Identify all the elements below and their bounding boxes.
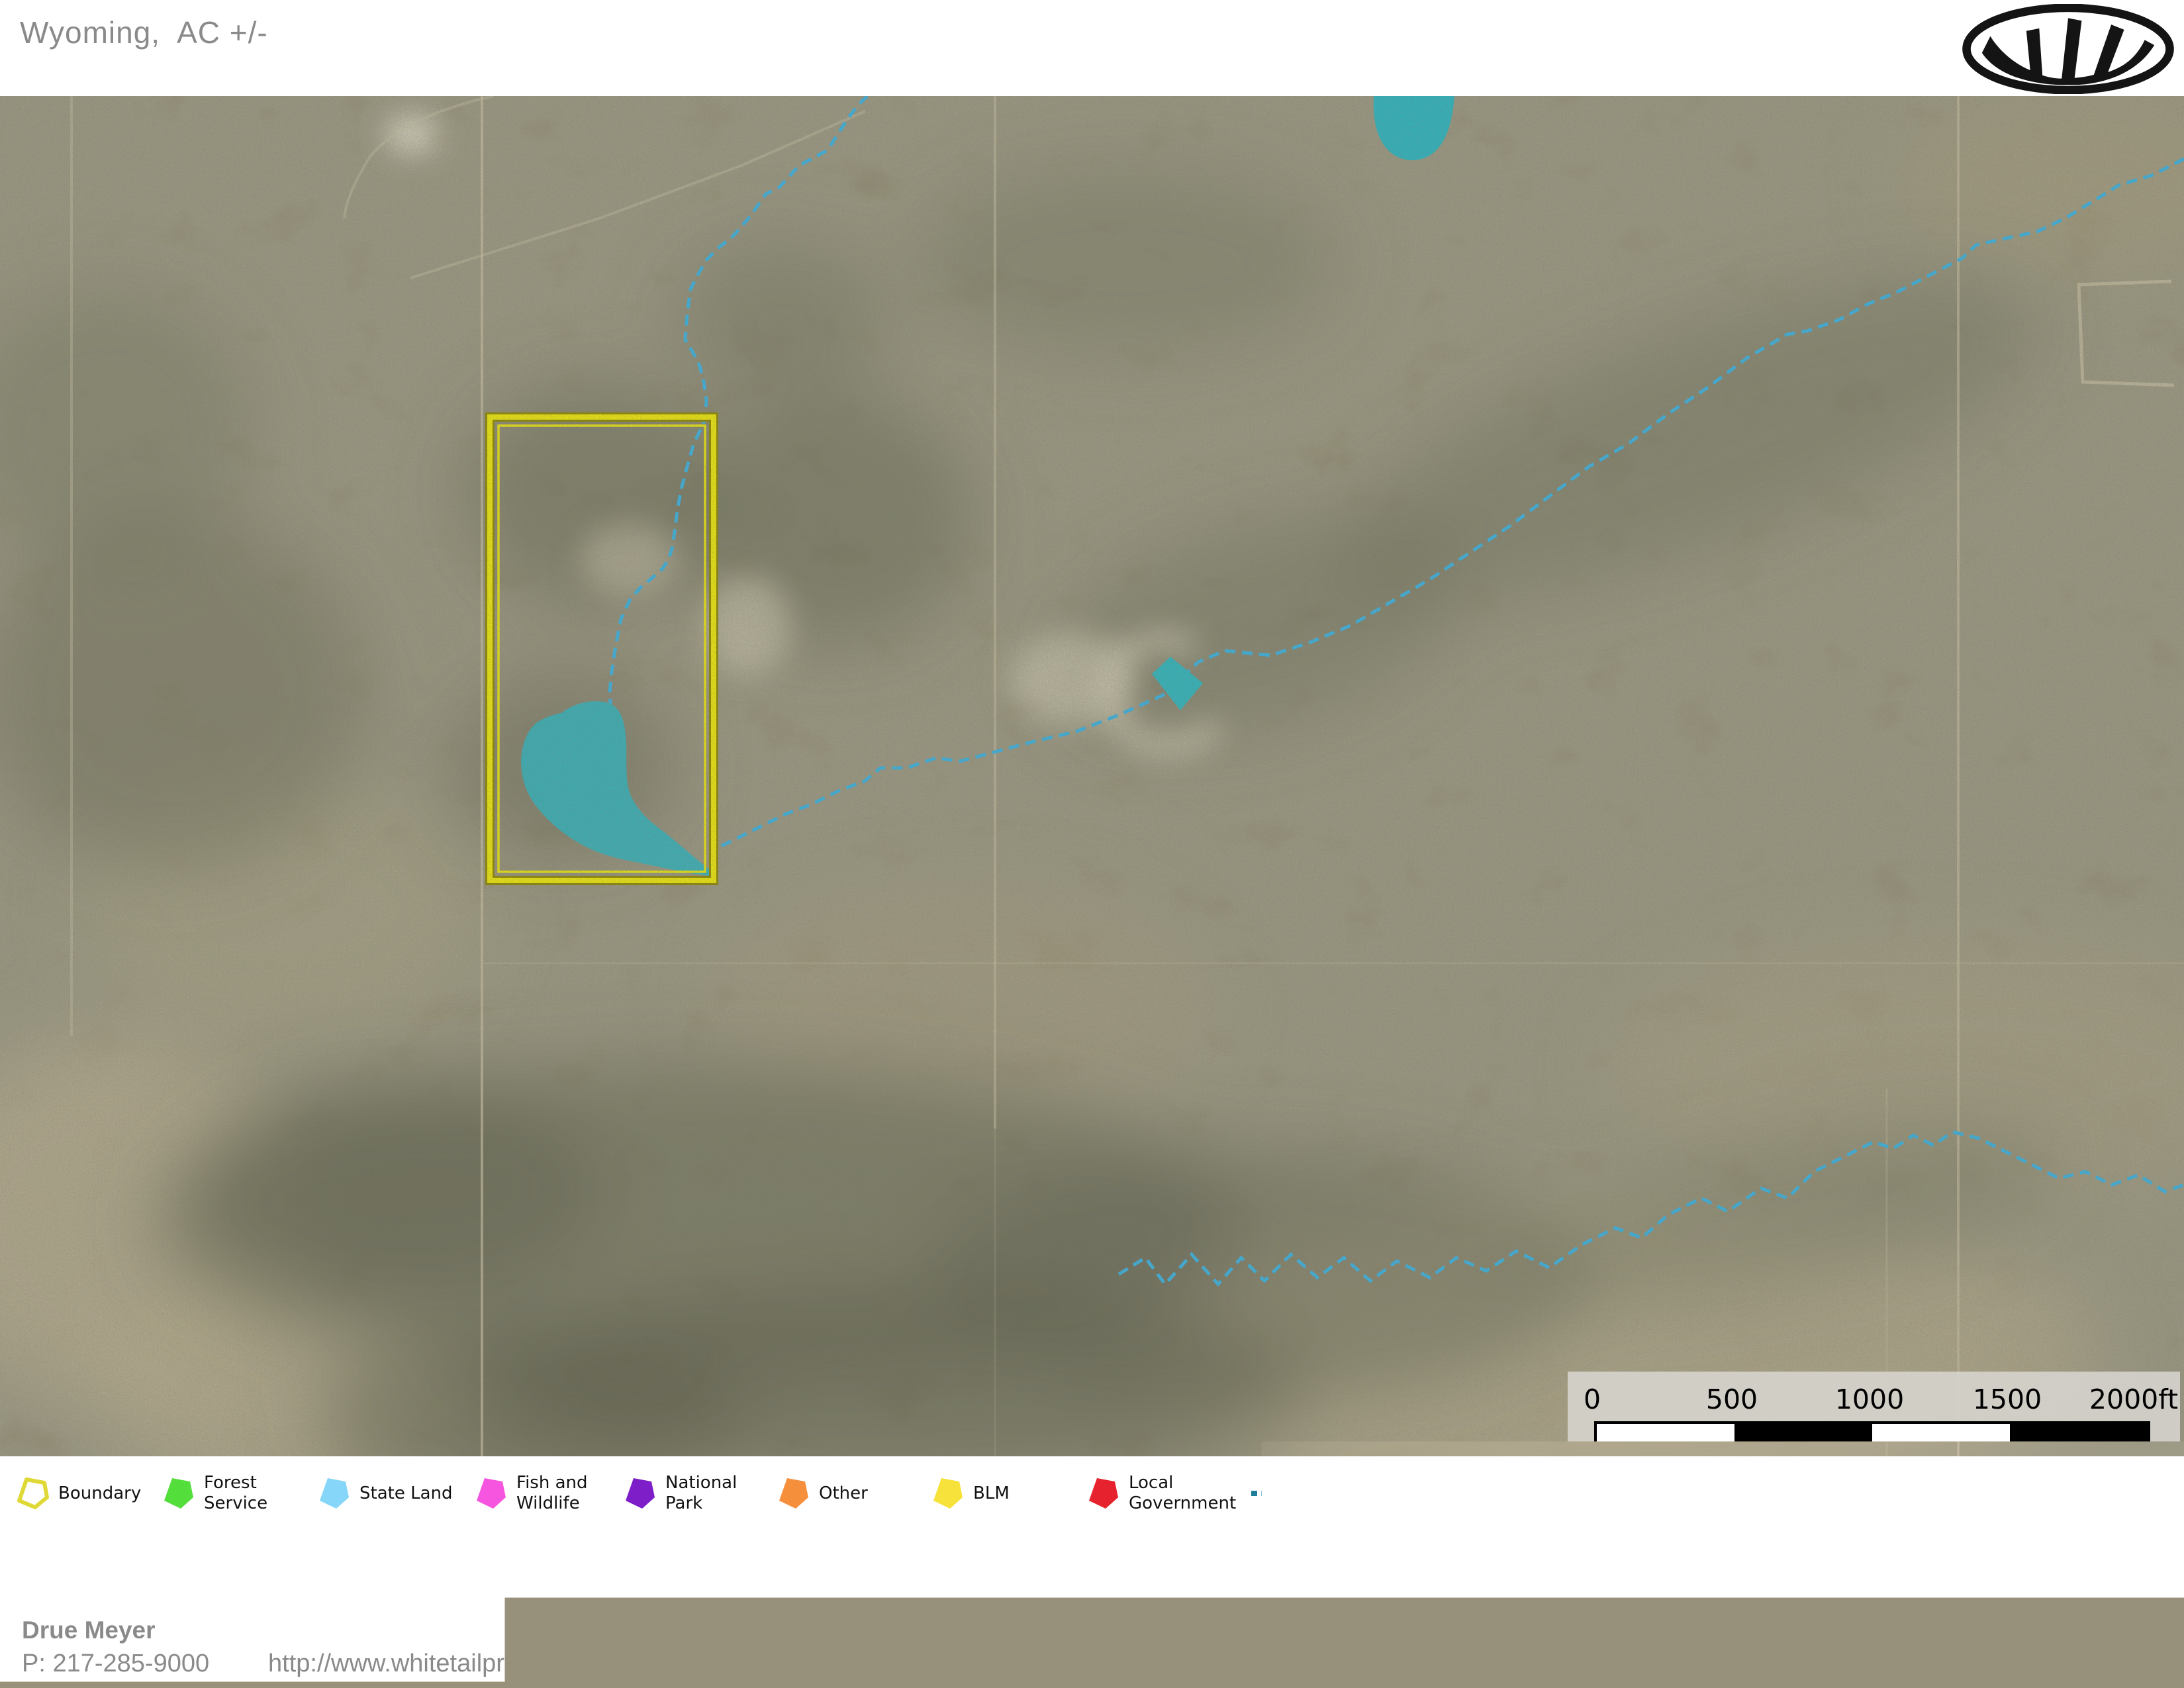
- scale-bar: 0 500 1000 1500 2000ft: [1568, 1372, 2180, 1453]
- legend-item-national-park: National Park: [624, 1456, 737, 1530]
- legend-label: National Park: [665, 1473, 737, 1514]
- legend-item-water-body: Water Body: [1554, 1456, 1695, 1530]
- mapright-logo: M: [1711, 1619, 1776, 1683]
- legend-item-blm: BLM: [931, 1456, 1010, 1530]
- legend-label: Stream, Intermittent: [1292, 1473, 1395, 1514]
- legend-label: State Land: [359, 1483, 453, 1504]
- scale-bar-segments: [1594, 1421, 2150, 1445]
- legend-item-state-land: State Land: [318, 1456, 453, 1530]
- terrain-grain: [0, 96, 2184, 1456]
- legend-label: Water Body: [1595, 1483, 1695, 1504]
- legend-label: BLM: [973, 1483, 1010, 1504]
- legend-label: Fish and Wildlife: [516, 1473, 588, 1514]
- legend-label: Local Government: [1129, 1473, 1236, 1514]
- legend-item-fish-wildlife: Fish and Wildlife: [475, 1456, 588, 1530]
- aerial-imagery: [0, 96, 2184, 1456]
- legend-label: Boundary: [58, 1483, 141, 1504]
- whitetail-antler-logo: [1958, 4, 2178, 94]
- map-export-page: Wyoming, AC +/-: [0, 0, 2184, 1688]
- page-title: Wyoming, AC +/-: [20, 15, 268, 50]
- scale-label-1500: 1500: [1973, 1383, 2042, 1415]
- blm-swatch-icon: [931, 1477, 965, 1510]
- legend-item-boundary: Boundary: [17, 1456, 141, 1530]
- legend-item-river-creek: River/Creek: [1405, 1456, 1547, 1530]
- agent-phone: P: 217-285-9000: [22, 1650, 209, 1678]
- legend-label: Other: [819, 1483, 868, 1504]
- scale-label-0: 0: [1584, 1383, 1601, 1415]
- map-legend: Boundary Forest Service State Land Fish …: [0, 1456, 2184, 1530]
- scale-label-2000: 2000ft: [2089, 1383, 2178, 1415]
- fish-wildlife-swatch-icon: [475, 1477, 508, 1510]
- river-creek-line-icon: [1405, 1477, 1439, 1510]
- legend-label: Forest Service: [204, 1473, 267, 1514]
- legend-item-stream-intermittent: Stream, Intermittent: [1250, 1456, 1395, 1530]
- legend-item-forest-service: Forest Service: [162, 1456, 267, 1530]
- national-park-swatch-icon: [624, 1477, 657, 1510]
- stream-intermittent-line-icon: [1250, 1477, 1283, 1510]
- other-swatch-icon: [777, 1477, 810, 1510]
- water-body-swatch-icon: [1554, 1477, 1587, 1510]
- scale-label-1000: 1000: [1835, 1383, 1904, 1415]
- state-land-swatch-icon: [318, 1477, 351, 1510]
- map-canvas[interactable]: [0, 96, 2184, 1456]
- local-government-swatch-icon: [1087, 1477, 1120, 1510]
- forest-service-swatch-icon: [162, 1477, 195, 1510]
- disclaimer-text: The information contained herein was obt…: [1784, 1619, 2184, 1688]
- legend-item-local-government: Local Government: [1087, 1456, 1236, 1530]
- agent-name: Drue Meyer: [22, 1617, 156, 1644]
- legend-label: River/Creek: [1447, 1483, 1547, 1504]
- agent-website[interactable]: http://www.whitetailproperties.com: [268, 1650, 648, 1678]
- legend-item-other: Other: [777, 1456, 868, 1530]
- mapright-logo-letter: M: [1720, 1624, 1767, 1679]
- scale-label-500: 500: [1706, 1383, 1758, 1415]
- boundary-outline-icon: [17, 1477, 50, 1510]
